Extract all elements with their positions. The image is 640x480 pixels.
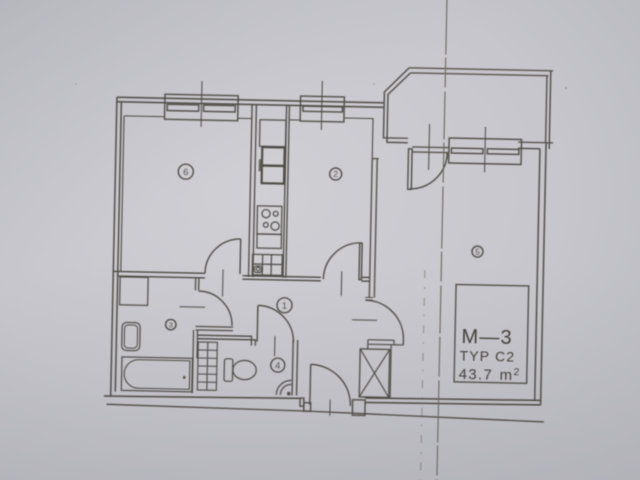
svg-text:4: 4 (275, 361, 280, 371)
svg-text:6: 6 (183, 167, 189, 178)
svg-text:5: 5 (475, 248, 480, 257)
svg-text:43.7m2: 43.7m2 (459, 365, 521, 384)
svg-text:1: 1 (282, 301, 288, 312)
svg-text:3: 3 (169, 320, 173, 329)
svg-text:M—3: M—3 (461, 326, 513, 349)
svg-text:2: 2 (333, 170, 338, 179)
svg-text:TYPC2: TYPC2 (459, 347, 515, 364)
